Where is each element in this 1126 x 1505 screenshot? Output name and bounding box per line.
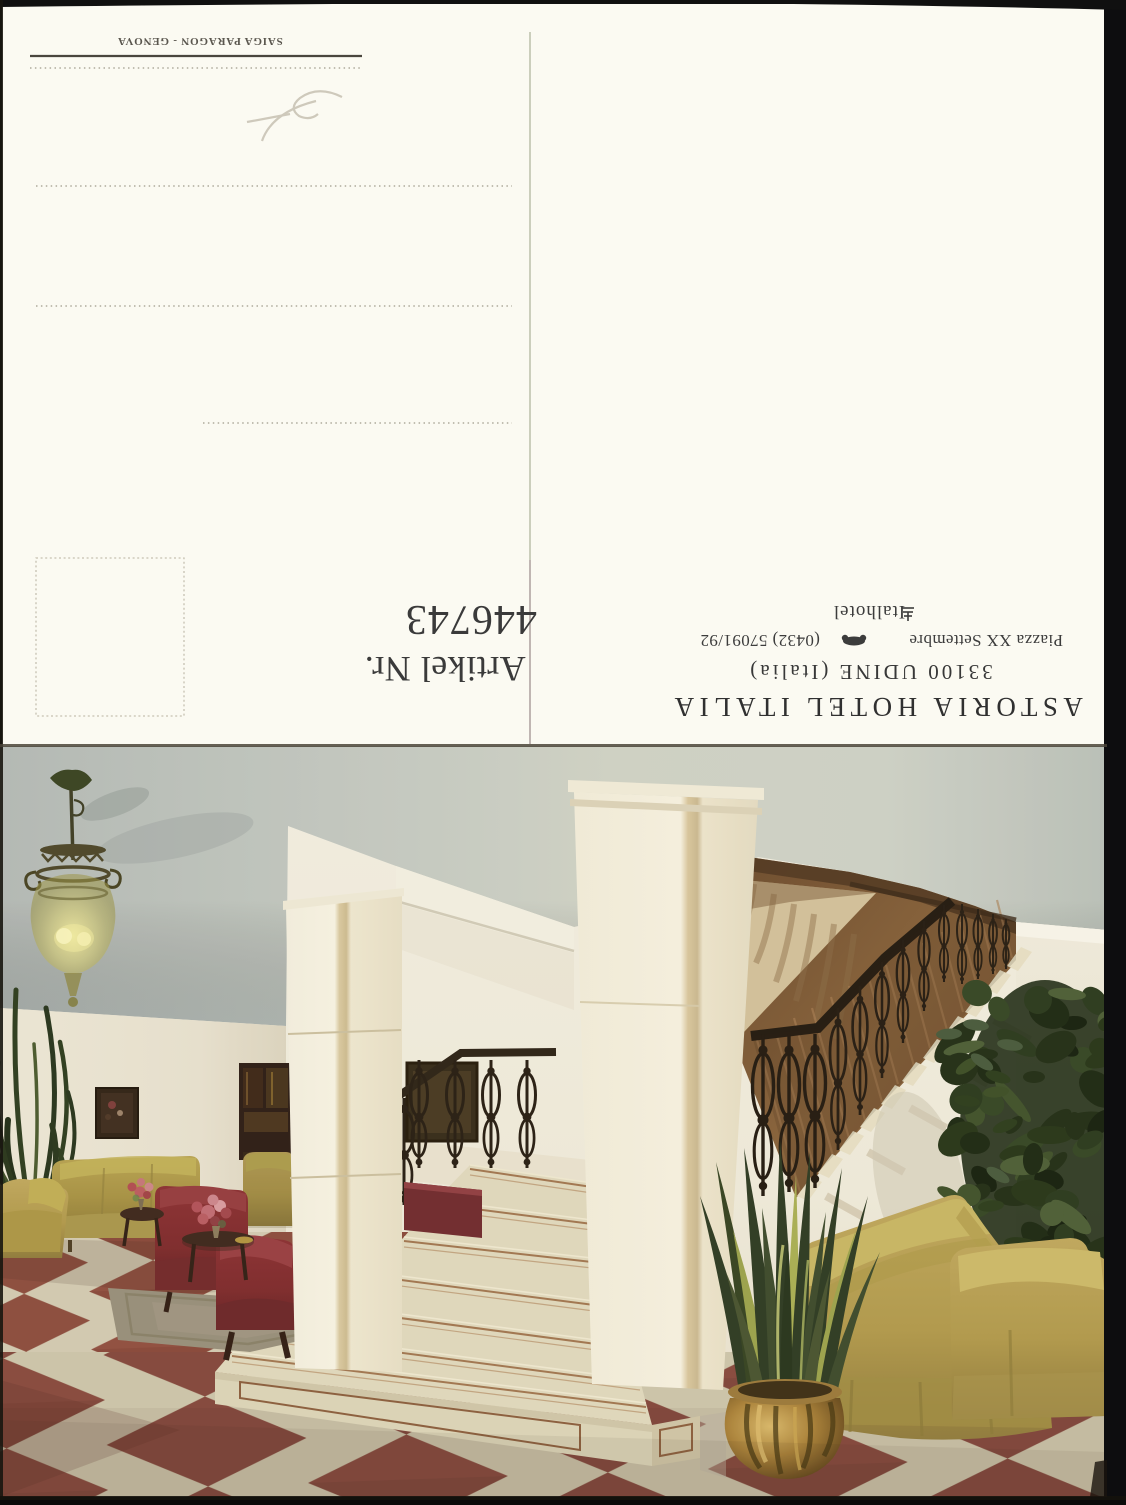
svg-text:ASTORIA HOTEL ITALIA: ASTORIA HOTEL ITALIA [669,692,1083,722]
svg-text:446743: 446743 [405,596,537,642]
svg-text:Artikel Nr.: Artikel Nr. [364,649,525,689]
svg-text:(0432) 57091/92: (0432) 57091/92 [700,631,820,650]
svg-text:SAIGA PARAGON - GENOVA: SAIGA PARAGON - GENOVA [117,35,282,47]
svg-text:Italhotel: Italhotel [833,601,905,622]
svg-text:33100 UDINE (Italia): 33100 UDINE (Italia) [747,660,992,684]
svg-text:Piazza XX Settembre: Piazza XX Settembre [909,631,1063,650]
